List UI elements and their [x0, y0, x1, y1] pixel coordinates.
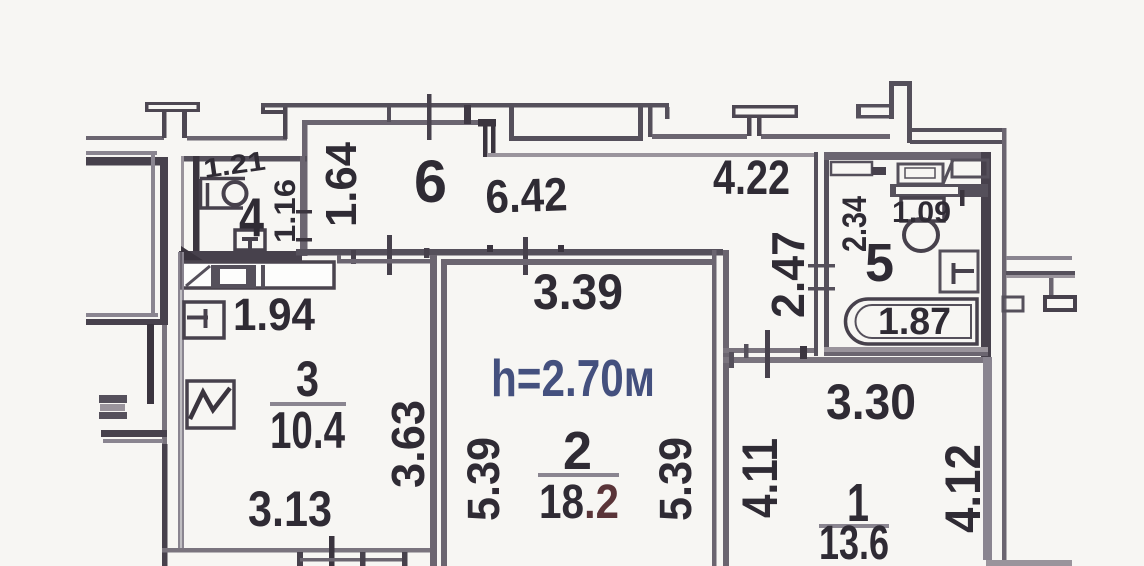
svg-text:3.13: 3.13 — [248, 481, 332, 537]
svg-text:6: 6 — [414, 148, 447, 215]
svg-text:h=2.70м: h=2.70м — [491, 350, 655, 408]
svg-text:10.4: 10.4 — [270, 402, 345, 460]
svg-text:6.42: 6.42 — [484, 167, 568, 223]
svg-text:4.12: 4.12 — [935, 444, 991, 533]
svg-text:13.6: 13.6 — [819, 517, 889, 566]
svg-text:1.64: 1.64 — [317, 141, 366, 227]
svg-text:3.63: 3.63 — [382, 400, 434, 488]
svg-text:4.22: 4.22 — [713, 152, 790, 205]
svg-text:5.39: 5.39 — [458, 437, 509, 521]
svg-text:5.39: 5.39 — [650, 437, 701, 521]
svg-text:4.11: 4.11 — [732, 438, 788, 518]
svg-text:5: 5 — [865, 233, 894, 293]
svg-text:3: 3 — [296, 351, 319, 407]
svg-text:4: 4 — [239, 186, 264, 248]
svg-text:1.87: 1.87 — [878, 301, 951, 343]
svg-text:1.16: 1.16 — [269, 179, 302, 243]
svg-text:2.47: 2.47 — [762, 231, 814, 318]
svg-text:1.94: 1.94 — [233, 289, 315, 340]
svg-text:2: 2 — [563, 421, 592, 481]
svg-text:18: 18 — [539, 476, 584, 529]
svg-text:1.09: 1.09 — [892, 196, 951, 229]
svg-text:3.39: 3.39 — [533, 264, 623, 320]
svg-text:3.30: 3.30 — [826, 374, 916, 430]
svg-text:.2: .2 — [584, 476, 619, 529]
